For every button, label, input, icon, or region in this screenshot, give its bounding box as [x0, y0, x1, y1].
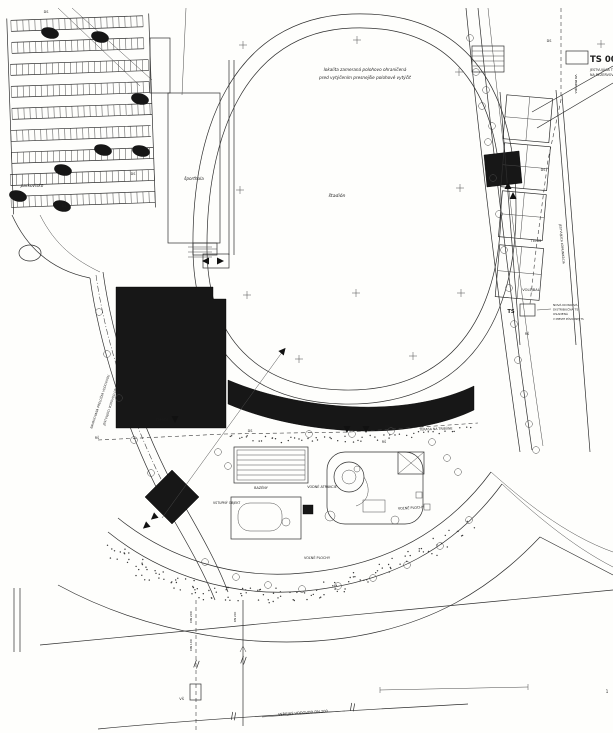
tree-icon — [306, 431, 313, 438]
site-plan-sheet: lokalita zameraná polohovo ohraničenápre… — [0, 0, 613, 733]
survey-cross — [243, 291, 251, 299]
survey-crosses — [236, 36, 605, 363]
legend-ts-note1: JESTVUJÚCA TS, NA — [589, 67, 613, 72]
triangle-marker-icon — [278, 346, 288, 356]
tree-icon — [96, 309, 103, 316]
tree-icon — [483, 87, 490, 94]
road-label: JESTVUJÚCA KOMUNIKÁCIA — [558, 223, 567, 265]
site-plan-drawing: lokalita zameraná polohovo ohraničenápre… — [0, 0, 613, 733]
tree-icon — [455, 469, 462, 476]
survey-cross — [456, 184, 464, 192]
tree-icon — [429, 439, 436, 446]
tree-icon — [467, 35, 474, 42]
main-building — [116, 287, 226, 428]
tennis-label: TENIS — [530, 239, 542, 243]
tree-icon — [479, 103, 486, 110]
tree-icon — [265, 582, 272, 589]
survey-cross — [239, 41, 247, 49]
tree-icon — [148, 470, 155, 477]
tree-icon — [506, 285, 513, 292]
ts-legend-symbol — [566, 51, 588, 64]
sheet-number: 1 — [606, 689, 609, 694]
public-watermain-label: VEREJNÝ VODOVOD DN 200 — [278, 708, 329, 717]
shrub-cluster-icon — [90, 29, 110, 44]
ds-label-2: DS — [62, 204, 67, 208]
tree-icon — [225, 463, 232, 470]
survey-cross — [236, 186, 244, 194]
tree-icon — [511, 321, 518, 328]
ts-mid-note1: NOVÁ KIOSKOVÁ — [553, 302, 579, 307]
ds-label-6: DS — [547, 39, 552, 43]
crossing-tick-icon — [194, 660, 200, 669]
triangle-marker-icon — [149, 512, 159, 522]
tree-icon — [215, 449, 222, 456]
sport-hall — [19, 8, 234, 268]
survey-cross — [597, 40, 605, 48]
survey-cross — [353, 36, 361, 44]
legend-ts-note2: NA REZERVOVÝ VÝVOD — [590, 72, 613, 77]
terrace2-label: TERASA — [155, 418, 169, 422]
tribune-stand — [228, 380, 474, 431]
crossing-tick-icon — [241, 656, 247, 665]
tree-icon — [466, 517, 473, 524]
survey-cross — [409, 352, 417, 360]
survey-cross — [295, 355, 303, 363]
pools-label: BAZÉNY — [254, 485, 269, 490]
pool-pavilion — [303, 505, 313, 514]
survey-note-line2: pred vytýčením presnejšie polohové vytýč… — [318, 75, 411, 80]
road-network — [12, 8, 613, 733]
tree-icon — [202, 559, 209, 566]
volleyball-label: VOLEJBAL — [522, 288, 539, 292]
dn200-label: DN 200 — [189, 611, 193, 622]
entrance-object-label: VSTUPNÝ OBJEKT — [213, 500, 240, 505]
triangle-marker-icon — [217, 258, 224, 265]
rs-label-3: RŠ — [525, 331, 529, 336]
ts-mid-note2: DISTRIBUČNÁ TS — [553, 307, 578, 312]
parking-label: parkovisko — [20, 183, 44, 188]
stadium-track — [193, 14, 516, 404]
ds-label-7: DS — [541, 168, 546, 172]
dn100-label: DN 100 — [189, 639, 193, 650]
ts-kiosk-symbol — [520, 304, 535, 316]
tree-icon — [489, 123, 496, 130]
utility-symbols — [190, 684, 201, 700]
sporthall-label: športhala — [184, 176, 204, 181]
ds-label-5: DS — [385, 425, 390, 429]
stadium-label: štadión — [329, 192, 346, 199]
vn-line-label: VN PRÍPOJKA — [574, 74, 579, 94]
ts-mid-label: TS — [507, 309, 515, 315]
vs-shaft-symbol — [190, 684, 201, 700]
survey-cross — [352, 289, 360, 297]
shrub-cluster-icon — [131, 143, 151, 158]
north-stand-block — [484, 151, 522, 187]
crossing-tick-icon — [231, 712, 235, 720]
tree-icon — [485, 139, 492, 146]
shrub-cluster-icon — [93, 142, 113, 157]
triangle-marker-icon — [141, 521, 151, 531]
survey-cross — [457, 289, 465, 297]
water-attractions-label: VODNÉ ATRAKCIE — [307, 484, 337, 489]
survey-cross — [455, 68, 463, 76]
dn200b-label: DN 200 — [233, 612, 237, 623]
rs-label-2: RŠ — [95, 435, 99, 440]
vs-shaft-label: VŠ — [179, 696, 184, 701]
ds-label-3: DS — [131, 172, 136, 176]
rs-label-1: RŠ — [382, 439, 386, 444]
crossing-tick-icon — [350, 703, 354, 711]
shrub-cluster-icon — [40, 25, 60, 40]
legend-ts — [530, 8, 588, 304]
tree-icon — [233, 574, 240, 581]
tree-icon — [515, 357, 522, 364]
open-areas-label-1: VOĽNÉ PLOCHY — [398, 504, 425, 510]
tree-icon — [533, 447, 540, 454]
ds-label-4: DS — [248, 429, 253, 433]
tree-icon — [444, 455, 451, 462]
ds-label-1: DS — [44, 10, 49, 14]
survey-note-line1: lokalita zameraná polohovo ohraničená — [324, 67, 407, 72]
legend-ts-title: TS 0062- — [590, 55, 613, 65]
open-areas-label-2: VOĽNÉ PLOCHY — [304, 555, 331, 560]
crossing-ticks — [194, 656, 355, 720]
buildings-dark — [116, 151, 522, 524]
tree-icon — [501, 247, 508, 254]
ts-mid-note3: OSADENÁ — [553, 311, 569, 316]
gravel-stipple — [107, 427, 475, 604]
